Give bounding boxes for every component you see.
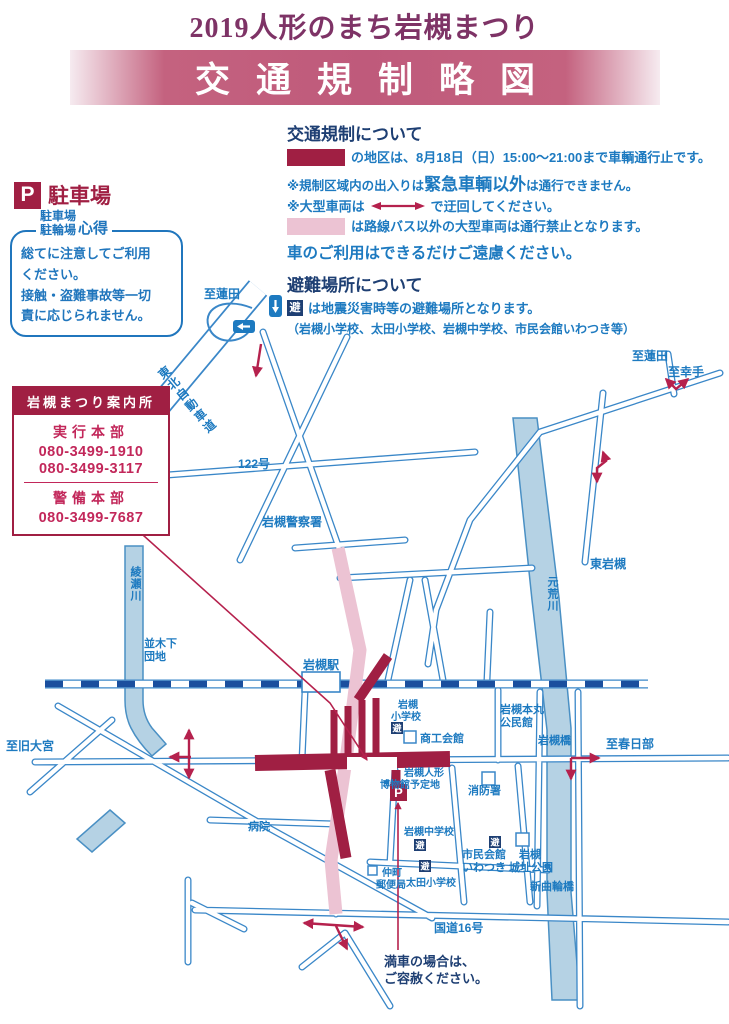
map-label: いわつき: [462, 861, 506, 874]
executive-hq-phone-2: 080-3499-3117: [14, 461, 168, 477]
banner-text: 交通規制略図: [195, 52, 561, 103]
map-label: ご容赦ください。: [384, 971, 488, 986]
executive-hq-title: 実行本部: [14, 422, 168, 442]
map-label: 商工会館: [420, 731, 464, 745]
legend: 交通規制について の地区は、8月18日（日）15:00～21:00まで車輌通行止…: [287, 120, 729, 337]
parking-notice-box: 駐車場 駐輪場 心得 総てに注意してご利用 ください。 接触・盗難事故等一切 責…: [10, 230, 183, 337]
map-label: 岩槻中学校: [403, 825, 455, 838]
building-marker: [404, 731, 416, 743]
map-label: 消防署: [468, 783, 501, 797]
evacuation-heading: 避難場所について: [287, 271, 729, 296]
evacuation-sites-text: （岩槻小学校、太田小学校、岩槻中学校、市民会館いわつき等）: [287, 320, 729, 337]
map-label: 至蓮田: [204, 286, 240, 301]
closed-zone-text: の地区は、8月18日（日）15:00～21:00まで車輌通行止です。: [351, 149, 711, 167]
pink-route-swatch: [287, 218, 345, 235]
doll-museum-site: [347, 757, 397, 770]
map-label: 至旧大宮: [6, 738, 54, 753]
map-label: 元荒川: [546, 576, 560, 612]
map-label: 小学校: [390, 710, 422, 723]
parking-notice-body: 総てに注意してご利用 ください。 接触・盗難事故等一切 責に応じられません。: [21, 244, 173, 327]
map-label: 綾瀬川: [129, 565, 143, 602]
map-label: 東岩槻: [590, 556, 626, 571]
evacuation-site-icon-glyph: 避: [392, 723, 402, 734]
notice-title-2: 駐輪場: [40, 224, 76, 238]
map-label: 岩槻駅: [302, 657, 340, 672]
map-label: 岩槻警察署: [261, 514, 322, 529]
map-label: 満車の場合は、: [384, 954, 475, 969]
evacuation-text: は地震災害時等の避難場所となります。: [308, 300, 540, 318]
map-label: 至春日部: [606, 736, 654, 751]
closed-zone-swatch: [287, 149, 345, 166]
legend-detour-row: ※大型車両は で迂回してください。: [287, 198, 729, 216]
parking-notice-title: 駐車場 駐輪場 心得: [36, 210, 112, 238]
map-label: 公民館: [500, 715, 533, 729]
map-label: 国道16号: [434, 920, 483, 935]
map-label: 至蓮田: [632, 348, 668, 363]
map-label: 団地: [144, 649, 166, 663]
map-label: 岩槻: [518, 847, 541, 861]
map-label: 122号: [238, 456, 270, 471]
map-label: 並木下: [144, 636, 177, 650]
map-label: 城址公園: [509, 860, 553, 874]
evacuation-site-icon-glyph: 避: [420, 861, 430, 872]
emergency-post: は通行できません。: [526, 179, 638, 193]
map-label: 市民会館: [462, 847, 506, 861]
parking-title: 駐車場: [48, 180, 111, 210]
info-box-body: 実行本部 080-3499-1910 080-3499-3117 警備本部 08…: [14, 415, 168, 534]
building-marker: [482, 772, 495, 785]
notice-title-stack: 駐車場 駐輪場: [40, 210, 76, 238]
page: 避避避避P至蓮田東北自動車道122号岩槻警察署至蓮田至幸手東岩槻元荒川綾瀬川並木…: [0, 0, 729, 1024]
map-label: 岩槻橋: [537, 733, 572, 747]
detour-pre: ※大型車両は: [287, 198, 365, 216]
evacuation-row: 避 は地震災害時等の避難場所となります。: [287, 300, 729, 318]
detour-arrow: [304, 923, 363, 927]
emergency-pre: ※規制区域内の出入りは: [287, 179, 424, 193]
festival-info-box: 岩槻まつり案内所 実行本部 080-3499-1910 080-3499-311…: [12, 386, 170, 536]
notice-title-3: 心得: [78, 217, 108, 238]
map-label: 病院: [248, 819, 270, 833]
evacuation-site-icon-glyph: 避: [415, 840, 425, 851]
traffic-regulation-heading: 交通規制について: [287, 120, 729, 145]
map-label: 新曲輪橋: [530, 879, 575, 893]
map-label: 岩槻人形: [403, 766, 444, 779]
map-label: 太田小学校: [405, 876, 457, 889]
map-label: 郵便局: [376, 878, 406, 891]
parking-icon: P: [14, 182, 41, 209]
map-label: 岩槻: [397, 698, 418, 711]
parking-heading: P 駐車場: [14, 180, 111, 210]
legend-pink-row: は路線バス以外の大型車両は通行禁止となります。: [287, 218, 729, 236]
detour-post: で迂回してください。: [431, 198, 560, 216]
info-box-divider: [24, 482, 158, 483]
page-title: 2019人形のまち岩槻まつり: [0, 6, 729, 46]
refrain-driving-text: 車のご利用はできるだけご遠慮ください。: [287, 241, 729, 263]
evacuation-site-icon-glyph: 避: [490, 837, 500, 848]
emergency-big: 緊急車輌以外: [424, 175, 526, 194]
building-marker: [516, 833, 529, 846]
map-label: 岩槻本丸: [499, 702, 545, 716]
map-label: 至幸手: [668, 364, 704, 379]
banner: 交通規制略図: [70, 50, 660, 105]
legend-emergency-row: ※規制区域内の出入りは緊急車輌以外は通行できません。: [287, 170, 729, 195]
detour-arrow: [256, 344, 261, 376]
security-hq-title: 警備本部: [14, 488, 168, 508]
map-label: 仲町: [382, 866, 402, 879]
pink-route-text: は路線バス以外の大型車両は通行禁止となります。: [351, 218, 648, 236]
info-box-header: 岩槻まつり案内所: [14, 388, 168, 415]
detour-arrow-icon: [370, 200, 426, 212]
evacuation-icon: 避: [287, 300, 303, 316]
executive-hq-phone-1: 080-3499-1910: [14, 444, 168, 460]
map-label: 博物館予定地: [380, 778, 440, 791]
legend-closed-zone-row: の地区は、8月18日（日）15:00～21:00まで車輌通行止です。: [287, 149, 729, 167]
security-hq-phone: 080-3499-7687: [14, 510, 168, 526]
notice-title-1: 駐車場: [40, 210, 76, 224]
building-marker: [368, 866, 377, 875]
